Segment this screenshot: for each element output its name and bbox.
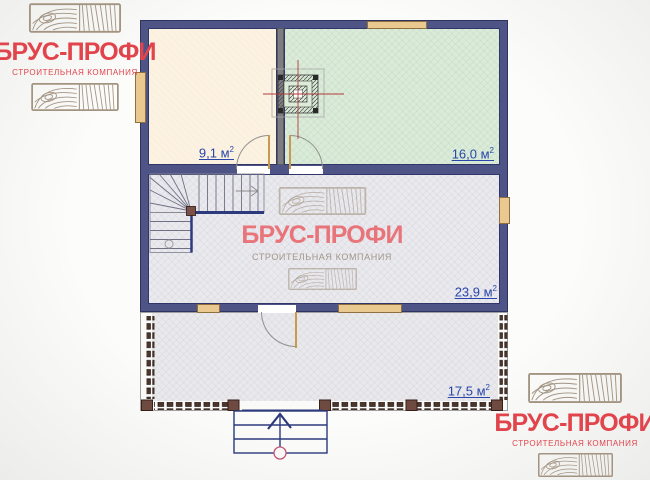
wood-texture-icon bbox=[525, 373, 625, 403]
brand-watermark-center: БРУС-ПРОФИ СТРОИТЕЛЬНАЯ КОМПАНИЯ bbox=[242, 187, 402, 290]
wood-texture-icon bbox=[31, 83, 119, 111]
window-top bbox=[367, 21, 427, 29]
area-label-terrace: 17,5 м2 bbox=[434, 384, 490, 397]
brand-name: БРУС-ПРОФИ bbox=[494, 411, 650, 436]
door-leaf-right bbox=[289, 135, 291, 169]
entry-marker bbox=[274, 447, 286, 459]
wood-texture-icon bbox=[29, 3, 121, 33]
brand-tagline: СТРОИТЕЛЬНАЯ КОМПАНИЯ bbox=[252, 252, 392, 262]
brand-name: БРУС-ПРОФИ bbox=[0, 40, 156, 65]
door-leaf-terrace bbox=[295, 312, 297, 348]
window-bottom-small bbox=[197, 304, 220, 313]
brand-logo-bottom-right: БРУС-ПРОФИ СТРОИТЕЛЬНАЯ КОМПАНИЯ bbox=[497, 373, 650, 477]
wood-texture-icon bbox=[528, 453, 623, 477]
partition-wall bbox=[277, 28, 284, 165]
entry-arrow-icon bbox=[268, 414, 291, 429]
area-label-room-top-right: 16,0 м2 bbox=[438, 147, 494, 160]
area-label-room-main: 23,9 м2 bbox=[441, 285, 497, 298]
room-top-right bbox=[284, 28, 500, 165]
brand-tagline: СТРОИТЕЛЬНАЯ КОМПАНИЯ bbox=[12, 68, 138, 77]
wood-texture-icon bbox=[274, 187, 371, 215]
brand-logo-top-left: БРУС-ПРОФИ СТРОИТЕЛЬНАЯ КОМПАНИЯ bbox=[0, 3, 153, 111]
door-leaf-left bbox=[268, 135, 270, 169]
wood-texture-icon bbox=[275, 268, 370, 290]
area-label-room-top-left: 9,1 м2 bbox=[178, 146, 234, 159]
window-bottom-large bbox=[338, 304, 402, 313]
floor-plan-page: 9,1 м2 16,0 м2 23,9 м2 17,5 м2 БРУС-ПРОФ… bbox=[0, 0, 650, 480]
entry-steps bbox=[234, 411, 327, 460]
brand-tagline: СТРОИТЕЛЬНАЯ КОМПАНИЯ bbox=[512, 439, 638, 448]
brand-name: БРУС-ПРОФИ bbox=[241, 223, 402, 248]
window-right bbox=[499, 197, 510, 224]
